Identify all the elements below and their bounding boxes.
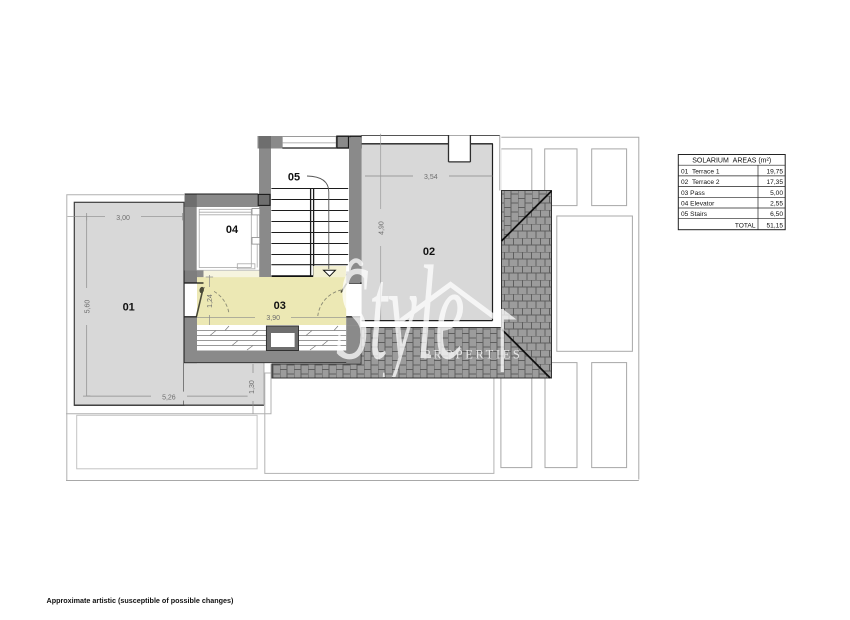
svg-text:Approximate artistic (suscepti: Approximate artistic (susceptible of pos… bbox=[47, 596, 235, 605]
svg-text:3,54: 3,54 bbox=[424, 174, 438, 181]
svg-text:3,90: 3,90 bbox=[266, 315, 280, 322]
svg-text:2,55: 2,55 bbox=[770, 201, 783, 208]
svg-text:6,50: 6,50 bbox=[770, 211, 783, 218]
svg-text:5,60: 5,60 bbox=[84, 300, 91, 314]
svg-text:01 Terrace 1: 01 Terrace 1 bbox=[681, 168, 720, 175]
svg-text:TOTAL: TOTAL bbox=[735, 222, 756, 229]
svg-text:01: 01 bbox=[123, 302, 135, 314]
svg-text:03 Pass: 03 Pass bbox=[681, 190, 706, 197]
svg-text:PROPERTIES: PROPERTIES bbox=[424, 348, 523, 362]
svg-text:19,75: 19,75 bbox=[766, 168, 783, 175]
svg-text:04 Elevator: 04 Elevator bbox=[681, 201, 715, 208]
svg-text:1,24: 1,24 bbox=[207, 294, 214, 308]
svg-text:03: 03 bbox=[274, 300, 286, 312]
svg-text:05: 05 bbox=[288, 172, 300, 184]
svg-text:5,00: 5,00 bbox=[770, 190, 783, 197]
svg-text:05 Stairs: 05 Stairs bbox=[681, 211, 708, 218]
svg-text:1,30: 1,30 bbox=[249, 380, 256, 394]
svg-text:5,26: 5,26 bbox=[162, 394, 176, 401]
svg-text:4,90: 4,90 bbox=[379, 221, 386, 235]
svg-text:51,15: 51,15 bbox=[766, 222, 783, 229]
svg-text:17,35: 17,35 bbox=[766, 179, 783, 186]
svg-text:04: 04 bbox=[226, 224, 239, 236]
svg-text:02 Terrace 2: 02 Terrace 2 bbox=[681, 179, 720, 186]
svg-text:3,00: 3,00 bbox=[116, 215, 130, 222]
svg-text:SOLARIUM AREAS (m²): SOLARIUM AREAS (m²) bbox=[692, 158, 771, 165]
